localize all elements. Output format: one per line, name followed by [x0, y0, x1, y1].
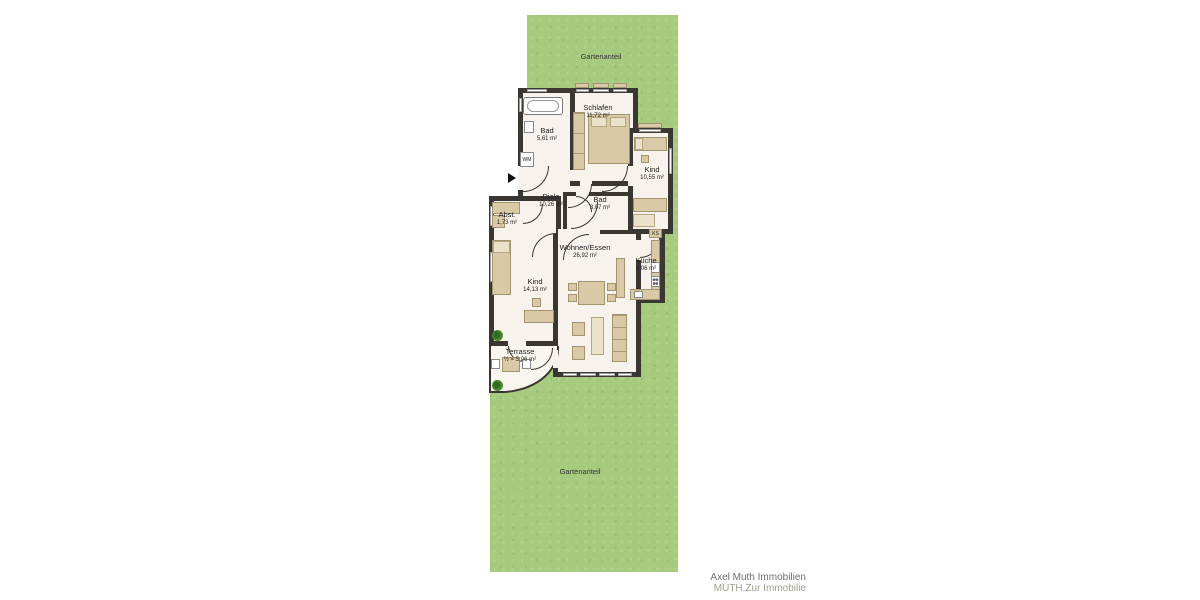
- room-label-kueche: Küche 8,06 m²: [635, 257, 656, 273]
- toilet: [524, 121, 534, 133]
- room-area: 3,07 m²: [590, 205, 610, 212]
- kid1-pillow: [635, 138, 643, 150]
- garden-area-left: [490, 385, 527, 572]
- attribution-line1: Axel Muth Immobilien: [710, 572, 806, 583]
- kid2-chair: [532, 298, 541, 307]
- dining-chair-1: [568, 283, 577, 291]
- kid1-chair: [641, 155, 649, 163]
- window-kind1-top: [639, 129, 661, 132]
- room-area: 11,72 m²: [583, 113, 612, 120]
- room-label-kind2: Kind 14,13 m²: [523, 278, 547, 294]
- kid1-desk: [633, 198, 667, 212]
- dining-chair-2: [568, 294, 577, 302]
- room-area: 8,06 m²: [635, 266, 656, 273]
- room-area: 1,73 m²: [497, 220, 517, 227]
- room-label-wohnen: Wohnen/Essen 26,92 m²: [560, 244, 611, 260]
- kitchen-counter-inset: [634, 291, 643, 298]
- room-label-abst: Abst. 1,73 m²: [497, 211, 517, 227]
- window-living-2: [580, 373, 596, 376]
- room-area: 5,61 m²: [537, 136, 557, 143]
- plant-icon: [492, 380, 503, 391]
- room-label-schlafen: Schlafen 11,72 m²: [583, 104, 612, 120]
- window-sill-schlafen-2: [593, 83, 609, 88]
- sofa: [612, 314, 627, 362]
- garden-label-bottom: Gartenanteil: [560, 467, 601, 476]
- attribution: Axel Muth Immobilien MUTH.Zur Immobilie: [710, 572, 806, 594]
- room-area: 10,26 m²: [539, 202, 563, 209]
- kid2-pillow: [493, 241, 510, 253]
- door-gap-terrace-living: [553, 350, 558, 368]
- room-label-bad1: Bad 5,61 m²: [537, 127, 557, 143]
- window-schlafen-2: [593, 89, 609, 92]
- armchair-2: [572, 346, 585, 360]
- room-label-diele: Diele 10,26 m²: [539, 193, 563, 209]
- room-area: 14,13 m²: [523, 287, 547, 294]
- window-living-1: [563, 373, 577, 376]
- window-sill-schlafen-3: [613, 83, 627, 88]
- dining-chair-3: [607, 283, 616, 291]
- window-schlafen-3: [613, 89, 627, 92]
- window-kind1-right: [669, 148, 672, 174]
- room-name: Bad: [537, 127, 557, 136]
- room-name: Wohnen/Essen: [560, 244, 611, 253]
- kid2-desk: [524, 310, 554, 323]
- room-name: Küche: [635, 257, 656, 266]
- window-bad-left: [519, 98, 522, 112]
- room-name: Terrasse: [504, 348, 536, 357]
- room-area: 26,92 m²: [560, 253, 611, 260]
- window-living-4: [618, 373, 632, 376]
- window-sill-kind1: [638, 123, 662, 128]
- room-area: ½ = 5,06 m²: [504, 357, 536, 364]
- kid1-dresser: [633, 214, 655, 227]
- dining-chair-4: [607, 294, 616, 302]
- room-label-bad2: Bad 3,07 m²: [590, 196, 610, 212]
- wardrobe: [573, 112, 585, 170]
- attribution-line2: MUTH.Zur Immobilie: [710, 583, 806, 594]
- window-sill-schlafen-1: [575, 83, 589, 88]
- room-label-terrasse: Terrasse ½ = 5,06 m²: [504, 348, 536, 364]
- armchair-1: [572, 322, 585, 336]
- room-name: Abst.: [497, 211, 517, 220]
- room-name: Kind: [640, 166, 664, 175]
- entrance-arrow-icon: [508, 173, 516, 183]
- room-label-kind1: Kind 10,55 m²: [640, 166, 664, 182]
- room-name: Kind: [523, 278, 547, 287]
- room-name: Schlafen: [583, 104, 612, 113]
- dining-table: [578, 281, 605, 305]
- room-name: Diele: [539, 193, 563, 202]
- window-schlafen-1: [576, 89, 589, 92]
- sideboard: [616, 258, 625, 298]
- fridge-label: KS: [652, 231, 659, 237]
- plant-icon: [492, 330, 503, 341]
- washing-machine-label: WM: [523, 157, 532, 163]
- window-living-3: [599, 373, 615, 376]
- door-gap-kind1: [628, 166, 638, 186]
- washing-machine: WM: [520, 152, 534, 167]
- room-name: Bad: [590, 196, 610, 205]
- fridge: KS: [649, 229, 662, 238]
- floorplan-canvas: WM KS Gartenanteil Gartenanteil Bad 5,61…: [0, 0, 1200, 600]
- stove: [651, 276, 660, 287]
- room-area: 10,55 m²: [640, 175, 664, 182]
- garden-label-top: Gartenanteil: [581, 52, 622, 61]
- coffee-table: [591, 317, 604, 355]
- window-bad-top: [527, 89, 547, 92]
- bathtub: [523, 97, 563, 115]
- terrace-chair-1: [491, 359, 500, 369]
